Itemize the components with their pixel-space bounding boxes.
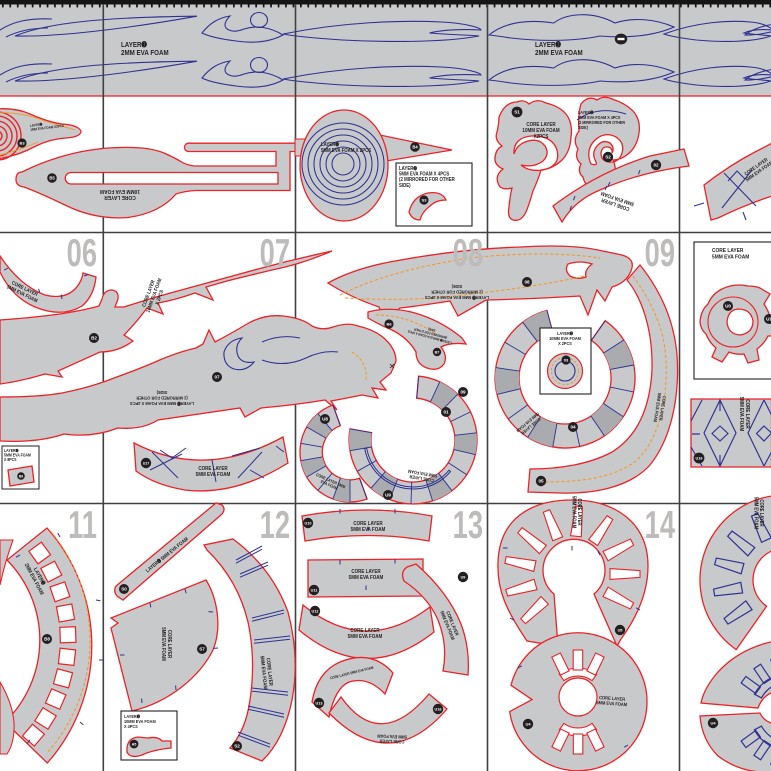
svg-text:U9: U9 (385, 493, 391, 498)
svg-text:U13: U13 (316, 702, 323, 706)
svg-text:U5: U5 (618, 629, 623, 633)
svg-text:A5: A5 (132, 743, 137, 747)
svg-text:S2: S2 (234, 744, 240, 749)
svg-text:13: 13 (453, 504, 483, 547)
svg-text:B9: B9 (19, 475, 23, 479)
svg-text:CORE LAYER5MM EVA FOAM: CORE LAYER5MM EVA FOAM (196, 466, 231, 478)
svg-text:S1: S1 (514, 110, 520, 115)
svg-text:U8: U8 (322, 417, 328, 422)
svg-text:04: 04 (570, 425, 576, 430)
svg-text:CORE LAYER5MM EVA FOAM: CORE LAYER5MM EVA FOAM (596, 695, 628, 708)
svg-text:09: 09 (645, 232, 675, 275)
svg-text:S2: S2 (605, 155, 611, 160)
svg-text:CORE LAYER5MM EVA FOAM: CORE LAYER5MM EVA FOAM (571, 496, 582, 528)
svg-text:S7: S7 (199, 647, 205, 652)
svg-text:01: 01 (443, 410, 449, 415)
svg-text:02: 02 (653, 163, 659, 168)
svg-text:B2: B2 (91, 336, 97, 341)
svg-text:14: 14 (645, 504, 676, 547)
svg-text:07: 07 (260, 232, 290, 275)
svg-text:08: 08 (453, 232, 483, 275)
svg-text:U16: U16 (435, 708, 442, 712)
svg-text:B5: B5 (49, 176, 55, 181)
svg-text:12: 12 (260, 504, 290, 547)
svg-text:CORE LAYER5MM EVA FOAM: CORE LAYER5MM EVA FOAM (348, 628, 383, 640)
svg-text:11: 11 (68, 504, 97, 547)
svg-text:U11: U11 (311, 589, 318, 593)
svg-text:03: 03 (564, 358, 569, 363)
svg-text:U4: U4 (525, 722, 531, 727)
svg-text:05: 05 (538, 479, 544, 484)
svg-text:✕: ✕ (389, 362, 396, 371)
svg-text:U10: U10 (305, 522, 312, 526)
svg-text:U0: U0 (725, 304, 731, 309)
svg-text:B7: B7 (435, 351, 440, 355)
svg-text:08: 08 (524, 280, 530, 285)
svg-text:B3: B3 (19, 141, 25, 146)
svg-text:CORE LAYER5MM EVA FOAM: CORE LAYER5MM EVA FOAM (738, 397, 750, 432)
svg-text:B6: B6 (386, 322, 392, 327)
svg-text:S0: S0 (121, 587, 127, 592)
svg-text:CORE LAYER5MM EVA FOAM: CORE LAYER5MM EVA FOAM (349, 569, 384, 581)
svg-text:06: 06 (67, 232, 97, 275)
svg-text:B8: B8 (44, 637, 50, 642)
svg-text:U9: U9 (461, 576, 466, 580)
svg-text:U16: U16 (696, 457, 703, 461)
svg-text:U17: U17 (143, 462, 150, 466)
svg-text:09: 09 (460, 390, 466, 395)
svg-text:07: 07 (214, 375, 220, 380)
svg-text:CORE LAYER5MM EVA FOAM: CORE LAYER5MM EVA FOAM (377, 733, 407, 744)
svg-text:S3: S3 (422, 198, 428, 203)
svg-text:U4: U4 (710, 721, 716, 726)
svg-text:U1: U1 (766, 317, 771, 322)
svg-text:CORE LAYER10MM EVA FOAM: CORE LAYER10MM EVA FOAM (100, 188, 140, 201)
svg-text:CORE LAYER5MM EVA FOAM: CORE LAYER5MM EVA FOAM (753, 497, 764, 529)
svg-text:U12: U12 (312, 610, 319, 614)
svg-text:B4: B4 (412, 145, 418, 150)
svg-text:CORE LAYER5MM EVA FOAM: CORE LAYER5MM EVA FOAM (160, 627, 172, 660)
